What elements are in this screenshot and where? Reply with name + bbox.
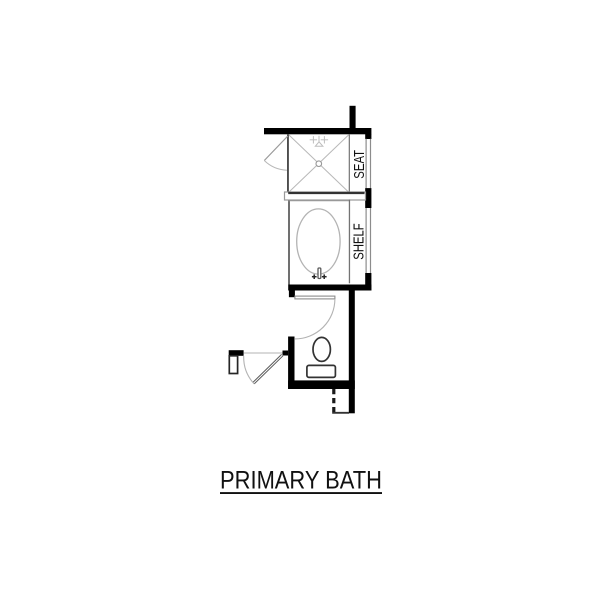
svg-text:SEAT: SEAT xyxy=(352,150,368,179)
svg-text:SHELF: SHELF xyxy=(351,223,367,259)
svg-text:PRIMARY BATH: PRIMARY BATH xyxy=(220,466,382,494)
